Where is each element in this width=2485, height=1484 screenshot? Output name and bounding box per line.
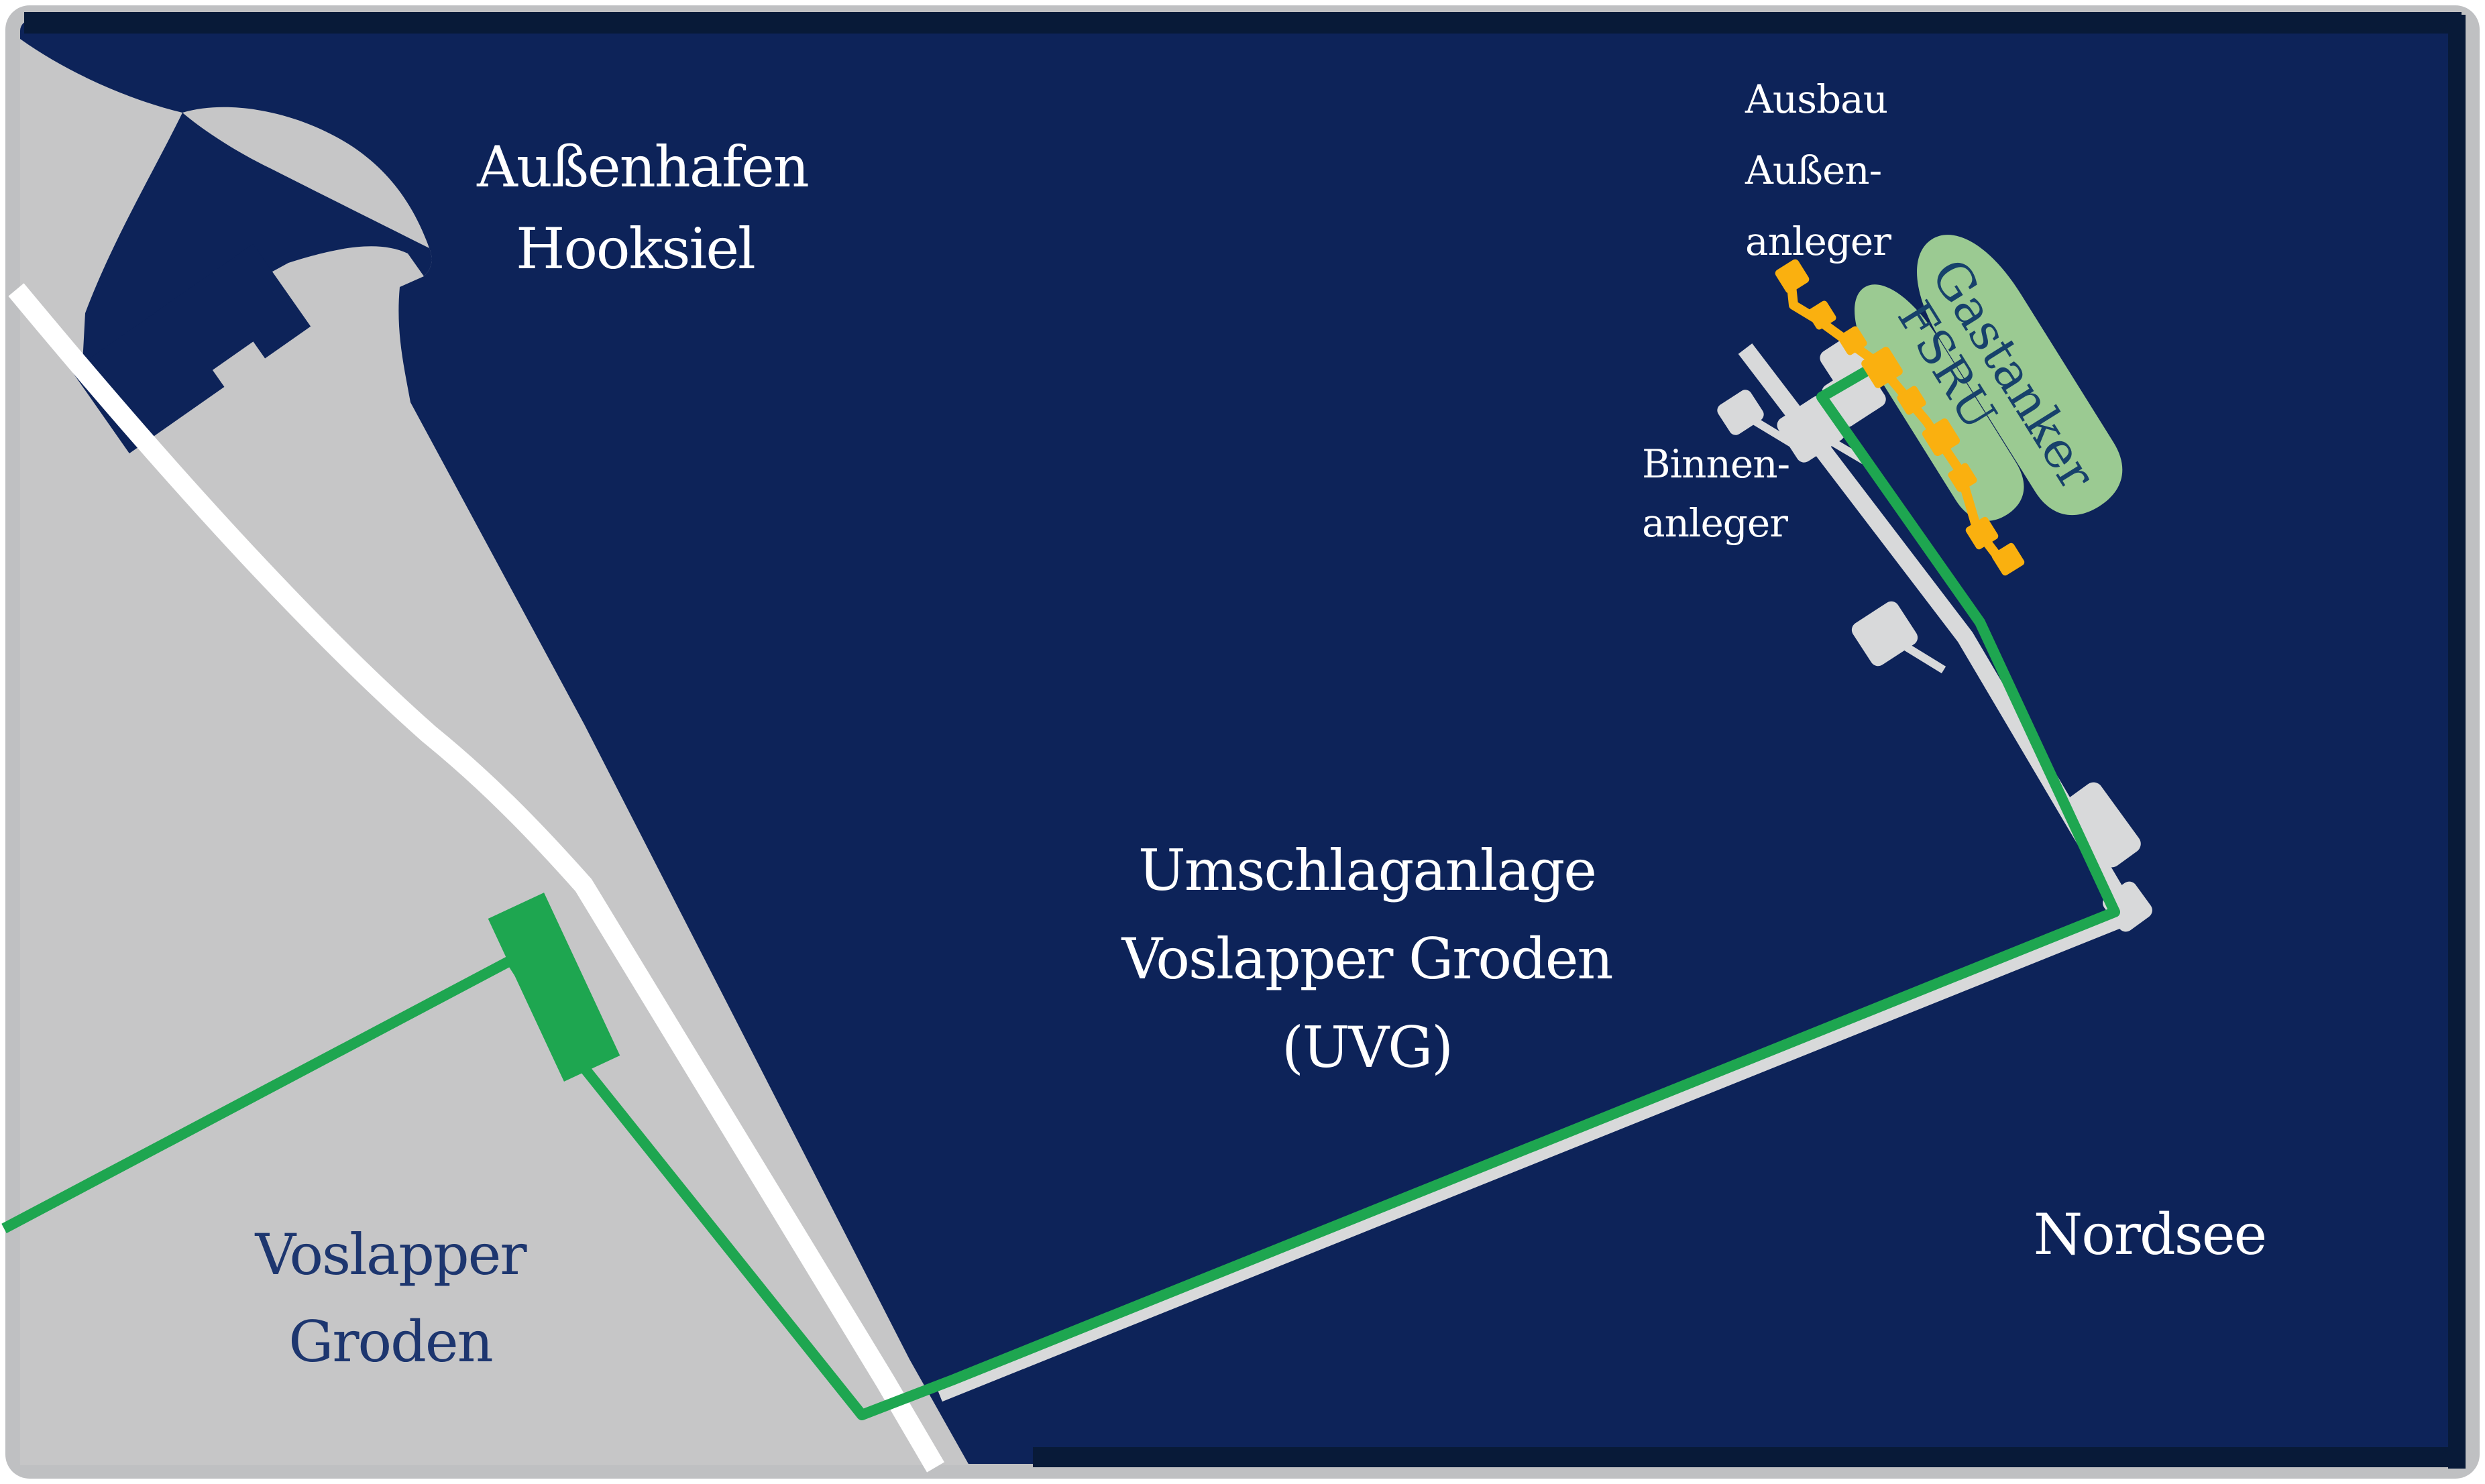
edge-shadow-right <box>2448 15 2466 1469</box>
label-aussenhafen: Außenhafen <box>476 134 808 200</box>
label-ausbau-aussenanleger: Ausbau Außen- anleger <box>1745 76 1891 264</box>
label-ausbau-line2: Außen- <box>1745 148 1881 193</box>
label-nordsee: Nordsee <box>2034 1202 2266 1267</box>
label-binnen-line1: Binnen- <box>1642 441 1789 487</box>
label-groden: Groden <box>288 1309 492 1375</box>
edge-shadow-top <box>24 12 2462 34</box>
label-uvg-line3: (UVG) <box>1282 1015 1452 1080</box>
label-ausbau-line3: anleger <box>1745 219 1891 264</box>
label-uvg-line1: Umschlaganlage <box>1138 838 1596 903</box>
label-voslapper: Voslapper <box>255 1222 528 1288</box>
label-hooksiel: Hooksiel <box>516 216 755 282</box>
label-binnen-line2: anleger <box>1642 500 1788 546</box>
harbor-map: Gastanker FSRU Außenhafen Hooksiel Ausba… <box>0 0 2485 1484</box>
edge-shadow-bottom <box>1033 1447 2463 1467</box>
label-uvg-line2: Voslapper Groden <box>1121 926 1612 992</box>
label-ausbau-line1: Ausbau <box>1745 76 1887 122</box>
